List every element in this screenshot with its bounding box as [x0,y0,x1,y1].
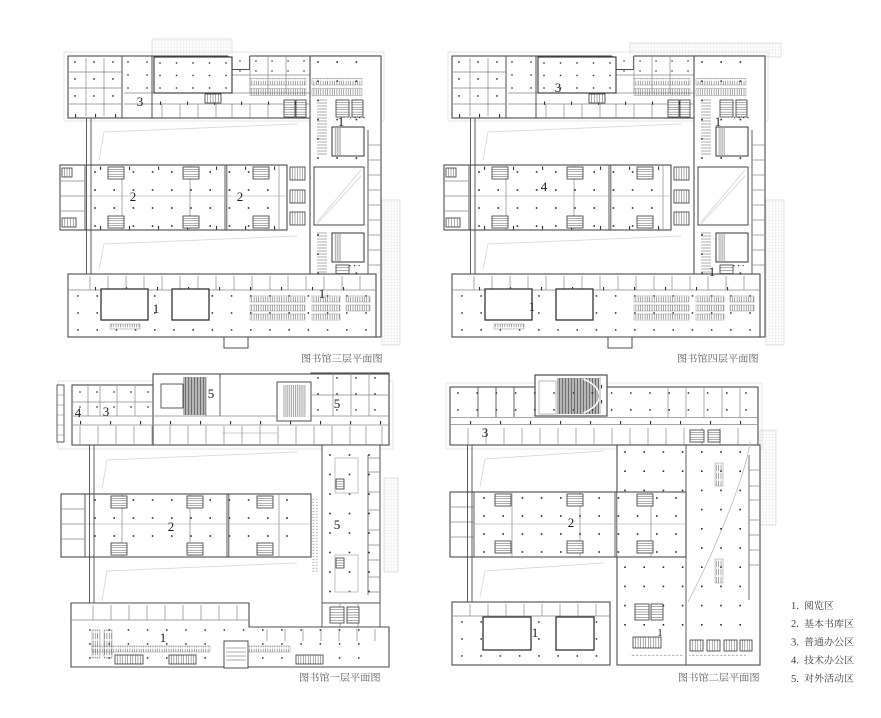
svg-text:1: 1 [657,627,663,639]
svg-text:2.: 2. [791,619,799,630]
svg-text:4: 4 [75,405,82,420]
svg-text:5.: 5. [791,674,799,685]
svg-text:4.: 4. [791,656,799,667]
svg-text:3: 3 [103,404,110,419]
svg-text:1: 1 [160,630,167,645]
svg-text:5: 5 [334,396,341,411]
svg-text:1: 1 [715,114,722,129]
svg-text:2: 2 [168,519,175,534]
svg-text:3: 3 [482,425,489,440]
svg-text:1: 1 [529,299,536,314]
svg-text:2: 2 [237,189,244,204]
svg-text:1: 1 [319,286,326,301]
svg-text:1: 1 [338,114,345,129]
svg-text:5: 5 [208,386,215,401]
svg-text:1.: 1. [791,601,799,612]
svg-text:2: 2 [130,189,137,204]
svg-text:1: 1 [532,625,539,640]
svg-text:4: 4 [541,179,548,194]
svg-text:3: 3 [555,80,562,95]
svg-text:1: 1 [709,264,716,279]
svg-text:1: 1 [153,301,160,316]
svg-text:3.: 3. [791,637,799,648]
svg-text:5: 5 [334,517,341,532]
svg-text:3: 3 [137,94,144,109]
svg-text:2: 2 [568,515,575,530]
